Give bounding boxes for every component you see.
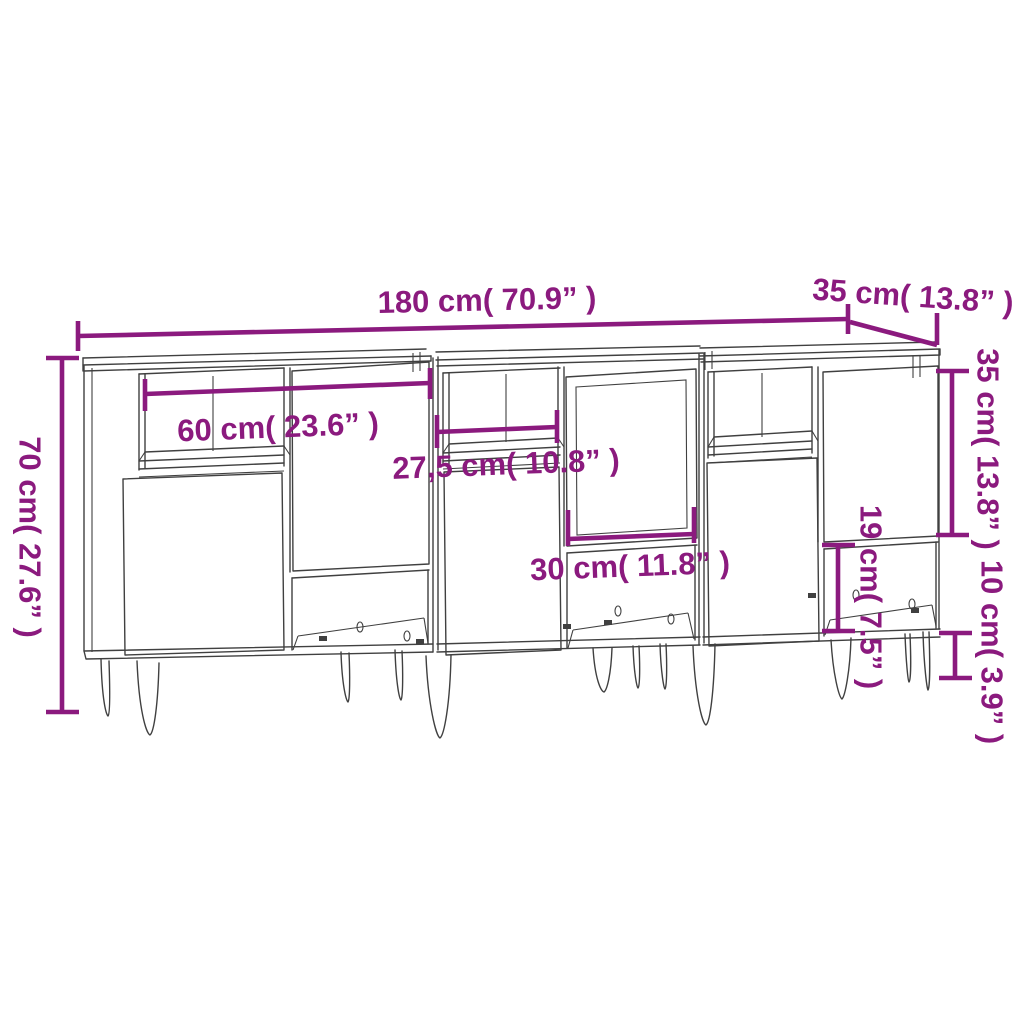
cabinet-left xyxy=(83,349,433,659)
dim-line-upper-right-height xyxy=(936,371,969,535)
dimension-label-middle-niche-width: 27,5 cm( 10.8” ) xyxy=(392,444,620,484)
cabinet-middle xyxy=(433,346,703,655)
dimension-label-door-width: 30 cm( 11.8” ) xyxy=(530,547,731,586)
dim-line-depth xyxy=(850,313,937,345)
cabinet-right xyxy=(699,342,940,646)
dim-line-door-width xyxy=(568,507,694,546)
dim-line-left-niche-width xyxy=(145,368,430,411)
dim-line-leg-height xyxy=(939,633,972,678)
dimension-label-total-width: 180 cm( 70.9” ) xyxy=(377,282,597,318)
dim-line-middle-niche-width xyxy=(437,410,557,448)
dimension-label-upper-right-height: 35 cm( 13.8” ) xyxy=(973,348,1004,550)
dimension-label-leg-height: 10 cm( 3.9” ) xyxy=(977,560,1008,744)
dim-line-total-height xyxy=(46,358,79,712)
dimension-diagram-page: { "diagram": { "type": "furniture-dimens… xyxy=(0,0,1024,1024)
diagram-stage: 180 cm( 70.9” ) 35 cm( 13.8” ) 70 cm( 27… xyxy=(0,0,1024,1024)
dimension-label-left-niche-width: 60 cm( 23.6” ) xyxy=(177,408,380,447)
dim-line-lower-niche-height xyxy=(822,545,855,631)
dimension-label-total-height: 70 cm( 27.6” ) xyxy=(15,436,46,638)
dimension-label-lower-niche-height: 19 cm( 7.5” ) xyxy=(856,505,887,689)
